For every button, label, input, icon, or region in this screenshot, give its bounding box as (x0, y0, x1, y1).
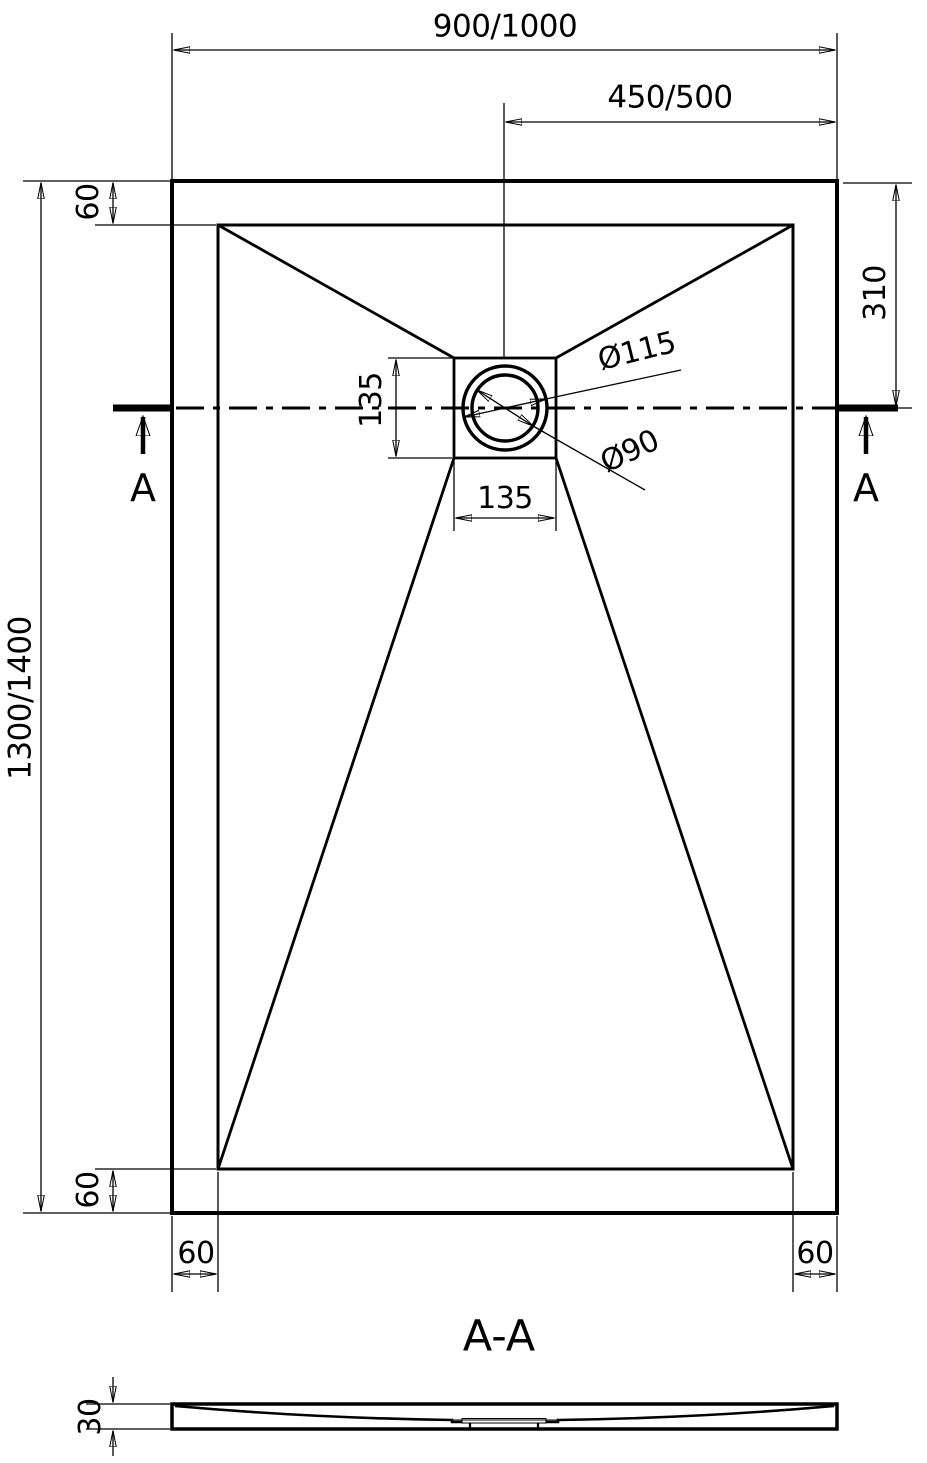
rim-top-label: 60 (74, 183, 104, 220)
drain-box-height-label: 135 (357, 372, 387, 428)
section-marker-right-label: A (853, 469, 879, 507)
overall-width-label: 900/1000 (433, 12, 578, 43)
slope-line-top-right (556, 225, 793, 358)
basin-surface-right (546, 1406, 834, 1422)
section-outline (172, 1404, 837, 1429)
dim-overall-length (23, 181, 170, 1213)
slope-line-bottom-right (556, 458, 793, 1169)
thickness-label: 30 (76, 1398, 106, 1435)
dim-rim-bottom (95, 1169, 216, 1211)
drain-offset-label: 450/500 (607, 83, 732, 114)
rim-right-label: 60 (796, 1239, 833, 1269)
drain-plate (462, 1419, 546, 1424)
rim-bottom-label: 60 (74, 1171, 104, 1208)
dim-rim-right (793, 1172, 837, 1292)
overall-length-label: 1300/1400 (6, 616, 37, 780)
section-cut-marks (113, 408, 898, 454)
section-view (172, 1404, 837, 1429)
section-title: A-A (463, 1316, 535, 1359)
rim-left-label: 60 (177, 1239, 214, 1269)
centerlines (176, 103, 912, 408)
dim-rim-left (172, 1172, 218, 1292)
basin-surface-left (175, 1406, 462, 1422)
section-marker-left-label: A (130, 469, 156, 507)
drawing-canvas (0, 0, 927, 1463)
slope-line-bottom-left (218, 458, 454, 1169)
drain-box-width-label: 135 (477, 484, 533, 514)
section-hatch (172, 1405, 836, 1429)
slope-line-top-left (218, 225, 454, 358)
technical-drawing: 900/1000 450/500 60 310 135 Ø115 Ø90 135… (0, 0, 927, 1463)
drain-from-top-label: 310 (861, 265, 891, 321)
dim-rim-top (95, 183, 216, 225)
